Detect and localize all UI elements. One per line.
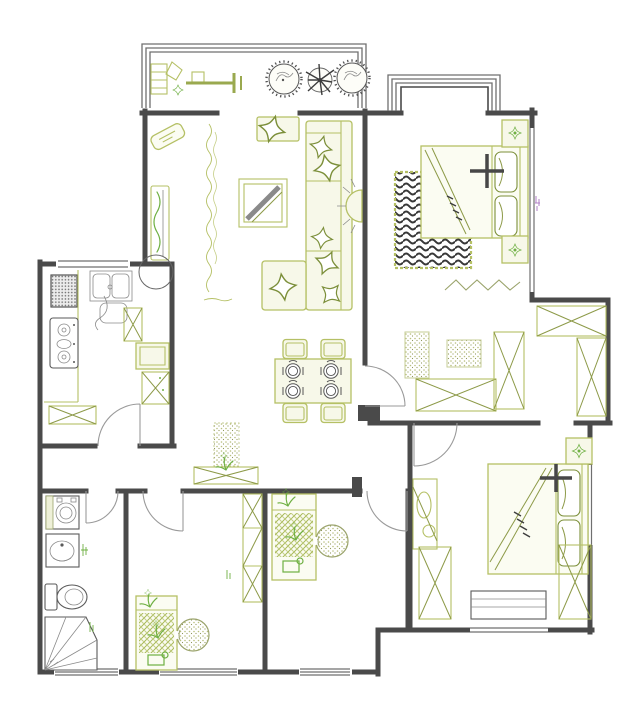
dotted-mat-icon bbox=[447, 340, 481, 367]
bedroom2-door-swing bbox=[414, 423, 457, 466]
wall-bottom-step bbox=[378, 630, 412, 674]
double-bed-icon bbox=[421, 146, 528, 238]
washing-machine-icon bbox=[46, 496, 79, 529]
bench-x-icon bbox=[49, 406, 96, 424]
hallway bbox=[194, 423, 258, 484]
wardrobe-x-icon bbox=[419, 547, 451, 619]
double-bed-icon bbox=[488, 464, 588, 574]
potted-plant-icon bbox=[267, 62, 302, 97]
tv-icon bbox=[149, 122, 186, 151]
single-bed-floral-icon bbox=[136, 590, 177, 671]
coffee-table-icon bbox=[239, 179, 287, 227]
green-dimension-mark bbox=[227, 570, 230, 579]
nightstand-flower-icon bbox=[502, 120, 528, 147]
bedroom4-door-swing bbox=[143, 491, 183, 531]
kitchen bbox=[44, 270, 169, 424]
dotted-pouf-icon bbox=[315, 525, 348, 557]
window-kitchen bbox=[56, 258, 130, 270]
dressing-table-icon bbox=[413, 479, 437, 549]
tv-cabinet-icon bbox=[151, 186, 169, 260]
zigzag-decor bbox=[445, 280, 520, 290]
potted-plant-icon bbox=[335, 61, 370, 96]
side-table-icon bbox=[256, 113, 299, 145]
balcony-railing bbox=[142, 44, 366, 108]
dining-table-icon bbox=[275, 359, 351, 403]
gas-stove-icon bbox=[50, 318, 78, 368]
double-sink-icon bbox=[90, 271, 132, 330]
balcony bbox=[151, 61, 370, 97]
fridge-icon bbox=[51, 275, 77, 307]
walk-in-closet bbox=[537, 306, 606, 416]
runner-rug-icon bbox=[214, 423, 239, 466]
pillow-icon bbox=[495, 196, 517, 236]
dotted-mat-icon bbox=[405, 332, 429, 378]
wardrobe-column-icon bbox=[243, 494, 262, 602]
exercise-equipment-icon bbox=[151, 62, 241, 95]
bedroom3-door-swing bbox=[367, 491, 407, 531]
bay-window bbox=[388, 75, 500, 111]
pier-bedroom3-door bbox=[352, 477, 362, 497]
bathroom-door-swing bbox=[86, 491, 118, 523]
toilet-icon bbox=[45, 584, 87, 610]
bedroom-4 bbox=[136, 494, 262, 670]
chair-icon bbox=[321, 404, 345, 423]
dotted-pouf-icon bbox=[176, 619, 209, 651]
chair-icon bbox=[283, 340, 307, 359]
floorplan-canvas bbox=[0, 0, 640, 727]
single-bed-floral-icon bbox=[272, 489, 316, 581]
kitchen-door-swing bbox=[98, 404, 140, 446]
potted-plant-spiky-icon bbox=[306, 64, 334, 95]
page: { "document": { "type": "apartment-floor… bbox=[0, 0, 640, 727]
potted-plant-square-icon bbox=[566, 438, 592, 464]
chair-icon bbox=[283, 404, 307, 423]
cabinet-x-icon bbox=[142, 372, 169, 404]
nightstand-flower-icon bbox=[502, 236, 528, 263]
bedroom-2 bbox=[413, 438, 592, 619]
wash-basin-icon bbox=[46, 534, 88, 567]
cabinet-icon bbox=[136, 343, 169, 369]
window-bedroom3 bbox=[299, 666, 352, 678]
wardrobe-x-icon bbox=[494, 332, 524, 409]
sofa-icon bbox=[262, 121, 352, 310]
corner-shower-icon bbox=[45, 617, 97, 670]
master-bedroom bbox=[395, 120, 528, 411]
window-bedroom2-bottom bbox=[470, 624, 548, 636]
pillow-icon bbox=[558, 520, 580, 566]
cabinet-x-icon bbox=[124, 308, 142, 341]
wardrobe-x-icon bbox=[577, 338, 606, 416]
master-door-swing bbox=[365, 366, 405, 406]
bathroom bbox=[45, 496, 97, 670]
pier-master-door bbox=[358, 405, 380, 421]
bedroom-3 bbox=[272, 489, 348, 581]
wall-texture-scribble bbox=[204, 124, 232, 301]
desk-icon bbox=[471, 591, 546, 619]
wardrobe-x-icon bbox=[537, 306, 606, 336]
chair-icon bbox=[321, 340, 345, 359]
dining-area bbox=[275, 340, 351, 423]
wardrobe-x-icon bbox=[416, 379, 496, 411]
